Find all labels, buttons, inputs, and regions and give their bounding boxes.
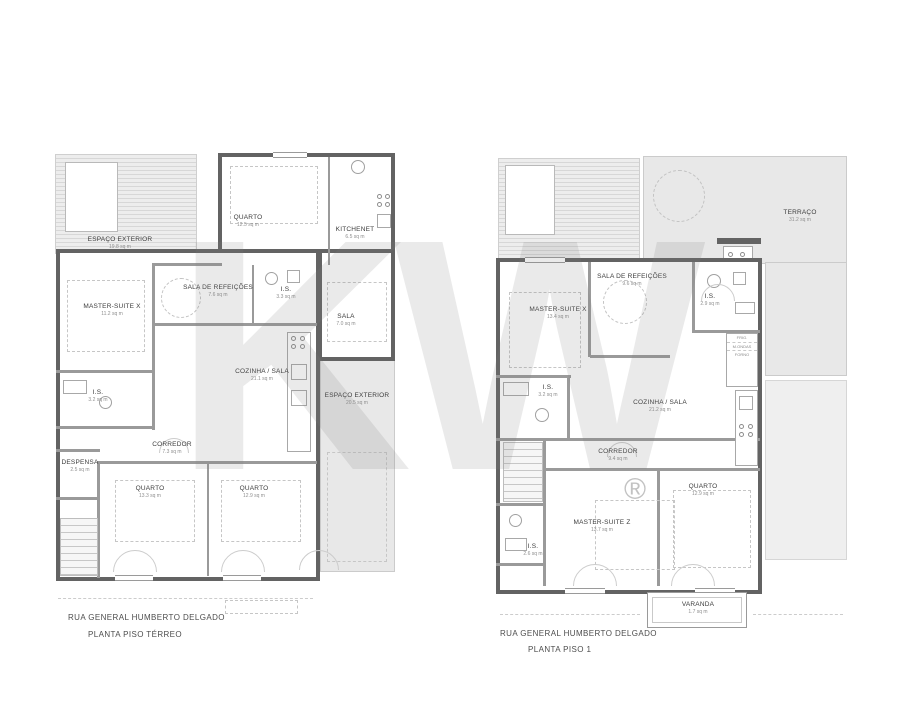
window xyxy=(115,575,153,581)
room-label-is-left: I.S. 3.2 sq m xyxy=(88,389,107,403)
bed xyxy=(509,292,581,368)
room-label-sala-refeicoes: SALA DE REFEIÇÕES 9.6 sq m xyxy=(597,273,667,287)
wall xyxy=(567,375,570,440)
room-area: 3.2 sq m xyxy=(538,392,557,398)
hob-burner-icon xyxy=(739,424,744,429)
window xyxy=(273,152,307,158)
room-label-is-bottom: I.S. 2.6 sq m xyxy=(523,543,542,557)
stairs xyxy=(60,518,98,576)
room-area: 13.3 sq m xyxy=(136,493,165,499)
floor-plan-ground: ESPAÇO EXTERIOR 19.8 sq m QUARTO 12.5 sq… xyxy=(55,152,397,610)
hob-burner-icon xyxy=(300,344,305,349)
bbq-burner-icon xyxy=(728,252,733,257)
room-area: 31.2 sq m xyxy=(783,217,816,223)
plan-title-ground: PLANTA PISO TÉRREO xyxy=(88,630,182,639)
toilet-icon xyxy=(733,272,746,285)
wall xyxy=(152,323,155,430)
terrace-area-side xyxy=(765,262,847,376)
room-name: SALA DE REFEIÇÕES xyxy=(183,284,253,292)
room-area: 9.4 sq m xyxy=(598,456,638,462)
room-area: 19.8 sq m xyxy=(88,244,153,250)
room-name: QUARTO xyxy=(240,485,269,493)
room-label-is-top: I.S. 2.9 sq m xyxy=(700,293,719,307)
room-area: 13.7 sq m xyxy=(574,527,631,533)
room-name: I.S. xyxy=(88,389,107,397)
room-label-despensa: DESPENSA 2.5 sq m xyxy=(61,459,98,473)
hob-burner-icon xyxy=(291,336,296,341)
bathtub-icon xyxy=(735,302,755,314)
room-name: CORREDOR xyxy=(598,448,638,456)
wall xyxy=(207,463,209,576)
room-area: 3.3 sq m xyxy=(276,294,295,300)
room-label-quarto-bl: QUARTO 13.3 sq m xyxy=(136,485,165,499)
microwave-label: M.ONDAS xyxy=(727,343,757,352)
hob-burner-icon xyxy=(377,202,382,207)
room-label-cozinha-sala: COZINHA / SALA 21.2 sq m xyxy=(633,399,687,413)
wall xyxy=(496,563,546,566)
wall xyxy=(692,262,695,332)
room-label-espaco-exterior-right: ESPAÇO EXTERIOR 20.5 sq m xyxy=(325,392,390,406)
room-area: 2.6 sq m xyxy=(523,551,542,557)
stairs xyxy=(503,442,543,502)
room-area: 12.9 sq m xyxy=(689,491,718,497)
room-area: 3.2 sq m xyxy=(88,397,107,403)
room-name: CORREDOR xyxy=(152,441,192,449)
room-label-quarto-br: QUARTO 12.9 sq m xyxy=(240,485,269,499)
skylight xyxy=(65,162,118,232)
room-name: VARANDA xyxy=(682,601,714,609)
sofa xyxy=(327,282,387,342)
room-name: COZINHA / SALA xyxy=(235,368,289,376)
floor-plan-first: FRIG. M.ONDAS FORNO TERRAÇO 31.2 sq m SA… xyxy=(495,152,847,627)
room-name: I.S. xyxy=(700,293,719,301)
room-label-master-suite-x: MASTER-SUITE X 13.4 sq m xyxy=(529,306,586,320)
room-name: ESPAÇO EXTERIOR xyxy=(325,392,390,400)
boundary-line xyxy=(58,598,313,599)
kitchen-appliance xyxy=(291,390,307,406)
sink-icon xyxy=(351,160,365,174)
room-name: I.S. xyxy=(276,286,295,294)
oven-label: FORNO xyxy=(727,351,757,359)
boundary-box xyxy=(225,600,298,614)
hob-burner-icon xyxy=(377,194,382,199)
room-label-terraco: TERRAÇO 31.2 sq m xyxy=(783,209,816,223)
window xyxy=(565,588,605,594)
wall xyxy=(152,263,155,325)
room-label-espaco-exterior: ESPAÇO EXTERIOR 19.8 sq m xyxy=(88,236,153,250)
room-name: MASTER-SUITE Z xyxy=(574,519,631,527)
window xyxy=(223,575,261,581)
room-label-is-mid: I.S. 3.3 sq m xyxy=(276,286,295,300)
room-area: 21.1 sq m xyxy=(235,376,289,382)
sink-icon xyxy=(265,272,278,285)
room-name: COZINHA / SALA xyxy=(633,399,687,407)
room-area: 6.5 sq m xyxy=(336,234,375,240)
room-area: 12.5 sq m xyxy=(234,222,263,228)
sink-icon xyxy=(535,408,549,422)
wall xyxy=(56,449,100,452)
room-area: 7.0 sq m xyxy=(336,321,355,327)
wall xyxy=(590,355,670,358)
plan-title-first: PLANTA PISO 1 xyxy=(528,645,591,654)
wall xyxy=(328,157,330,265)
room-area: 2.9 sq m xyxy=(700,301,719,307)
wall xyxy=(152,323,317,326)
terrace-table xyxy=(653,170,705,222)
wall xyxy=(543,468,760,471)
room-label-quarto-top: QUARTO 12.5 sq m xyxy=(234,214,263,228)
bbq-burner-icon xyxy=(740,252,745,257)
room-area: 12.9 sq m xyxy=(240,493,269,499)
toilet-icon xyxy=(287,270,300,283)
fridge-label: FRIG. xyxy=(727,334,757,343)
boundary-line xyxy=(500,614,640,615)
exterior-area-lower xyxy=(765,380,847,560)
skylight xyxy=(505,165,555,235)
room-area: 21.2 sq m xyxy=(633,407,687,413)
room-name: TERRAÇO xyxy=(783,209,816,217)
shower-icon xyxy=(63,380,87,394)
bed xyxy=(673,490,751,568)
room-area: 1.7 sq m xyxy=(682,609,714,615)
wall xyxy=(56,426,154,429)
room-label-corredor: CORREDOR 7.3 sq m xyxy=(152,441,192,455)
hob-burner-icon xyxy=(300,336,305,341)
room-label-sala-refeicoes: SALA DE REFEIÇÕES 7.6 sq m xyxy=(183,284,253,298)
room-name: SALA DE REFEIÇÕES xyxy=(597,273,667,281)
wall xyxy=(56,497,100,500)
room-name: QUARTO xyxy=(136,485,165,493)
kitchen-appliance xyxy=(291,364,307,380)
shower-icon xyxy=(503,382,529,396)
room-area: 13.4 sq m xyxy=(529,314,586,320)
wall xyxy=(588,262,591,357)
room-name: MASTER-SUITE X xyxy=(529,306,586,314)
plan-address-ground: RUA GENERAL HUMBERTO DELGADO xyxy=(68,613,225,622)
room-label-sala: SALA 7.0 sq m xyxy=(336,313,355,327)
registered-trademark-icon: ® xyxy=(624,473,646,507)
room-label-is-mid: I.S. 3.2 sq m xyxy=(538,384,557,398)
room-area: 2.5 sq m xyxy=(61,467,98,473)
exterior-paving xyxy=(327,452,387,562)
kitchen-appliance xyxy=(377,214,391,228)
room-name: QUARTO xyxy=(689,483,718,491)
room-label-corredor: CORREDOR 9.4 sq m xyxy=(598,448,638,462)
room-label-cozinha-sala: COZINHA / SALA 21.1 sq m xyxy=(235,368,289,382)
sink-icon xyxy=(509,514,522,527)
room-name: KITCHENET xyxy=(336,226,375,234)
kitchen-sink-icon xyxy=(739,396,753,410)
room-label-varanda: VARANDA 1.7 sq m xyxy=(682,601,714,615)
hob-burner-icon xyxy=(739,432,744,437)
room-area: 9.6 sq m xyxy=(597,281,667,287)
plan-address-first: RUA GENERAL HUMBERTO DELGADO xyxy=(500,629,657,638)
hob-burner-icon xyxy=(291,344,296,349)
room-name: I.S. xyxy=(523,543,542,551)
room-label-master-suite-z: MASTER-SUITE Z 13.7 sq m xyxy=(574,519,631,533)
wall xyxy=(56,370,154,373)
room-label-master-suite-x: MASTER-SUITE X 11.2 sq m xyxy=(83,303,140,317)
bbq-wall xyxy=(717,238,761,244)
room-label-kitchenet: KITCHENET 6.5 sq m xyxy=(336,226,375,240)
room-label-quarto: QUARTO 12.9 sq m xyxy=(689,483,718,497)
room-name: I.S. xyxy=(538,384,557,392)
wall xyxy=(570,438,760,441)
room-name: ESPAÇO EXTERIOR xyxy=(88,236,153,244)
boundary-line xyxy=(753,614,843,615)
wall xyxy=(496,438,571,441)
hob-burner-icon xyxy=(385,194,390,199)
room-area: 7.6 sq m xyxy=(183,292,253,298)
room-name: DESPENSA xyxy=(61,459,98,467)
room-area: 11.2 sq m xyxy=(83,311,140,317)
wall xyxy=(152,263,222,266)
room-name: MASTER-SUITE X xyxy=(83,303,140,311)
hob-burner-icon xyxy=(385,202,390,207)
appliance-column: FRIG. M.ONDAS FORNO xyxy=(726,333,758,387)
hob-burner-icon xyxy=(748,424,753,429)
wall xyxy=(496,375,571,378)
room-area: 20.5 sq m xyxy=(325,400,390,406)
wall xyxy=(496,503,546,506)
hob-burner-icon xyxy=(748,432,753,437)
room-name: QUARTO xyxy=(234,214,263,222)
bed xyxy=(595,500,675,570)
room-name: SALA xyxy=(336,313,355,321)
room-area: 7.3 sq m xyxy=(152,449,192,455)
window xyxy=(525,257,565,263)
